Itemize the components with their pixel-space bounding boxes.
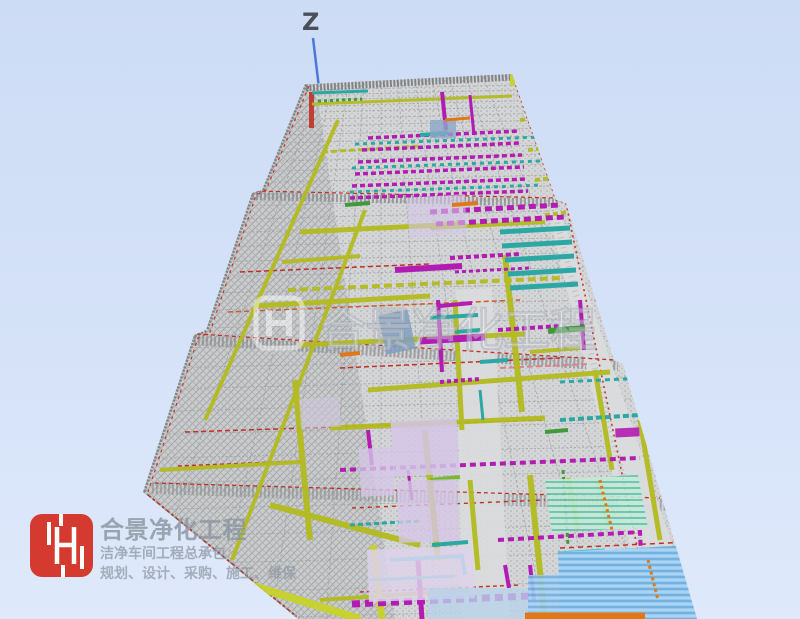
z-axis-label: Z bbox=[302, 8, 319, 36]
logo-h-icon bbox=[30, 514, 93, 577]
model-viewport: Z bbox=[0, 0, 800, 619]
bim-model-scene: Z bbox=[0, 0, 800, 619]
company-tagline: 洁净车间工程总承包 bbox=[100, 545, 226, 562]
company-services: 规划、设计、采购、施工、维保 bbox=[100, 565, 297, 582]
watermark-text: 合景净化工程 bbox=[320, 303, 596, 357]
company-name: 合景净化工程 bbox=[100, 516, 247, 544]
